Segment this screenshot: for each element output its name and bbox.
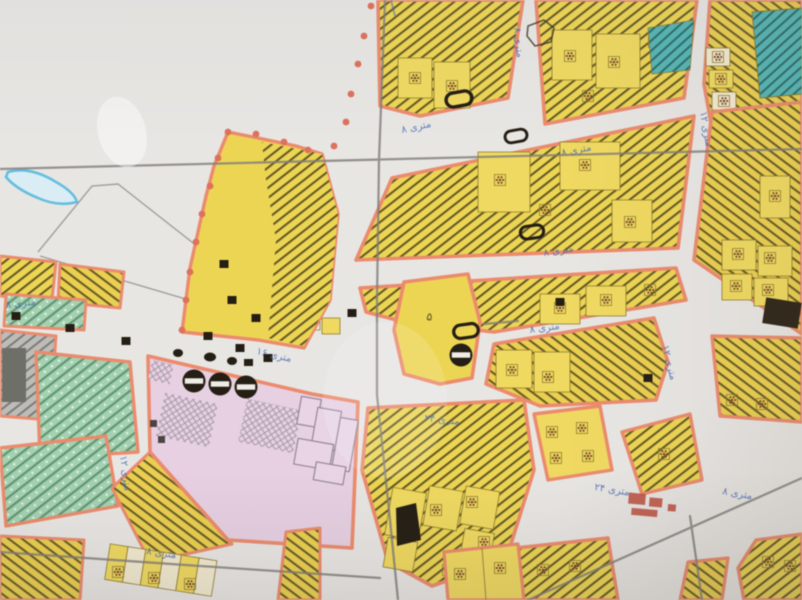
circle-bar-icon [450, 344, 473, 367]
block-bottom-b2a [534, 406, 612, 480]
block-corner-sw [0, 536, 84, 600]
building-icon [348, 309, 357, 317]
zoning-map: ۵ [0, 0, 802, 600]
map-photo: ۵ [0, 0, 802, 600]
block-right-b3a [712, 336, 802, 422]
block-bottom-b5 [444, 544, 524, 600]
block-right-b3c [680, 558, 728, 600]
block-bottom-b4 [516, 538, 618, 600]
